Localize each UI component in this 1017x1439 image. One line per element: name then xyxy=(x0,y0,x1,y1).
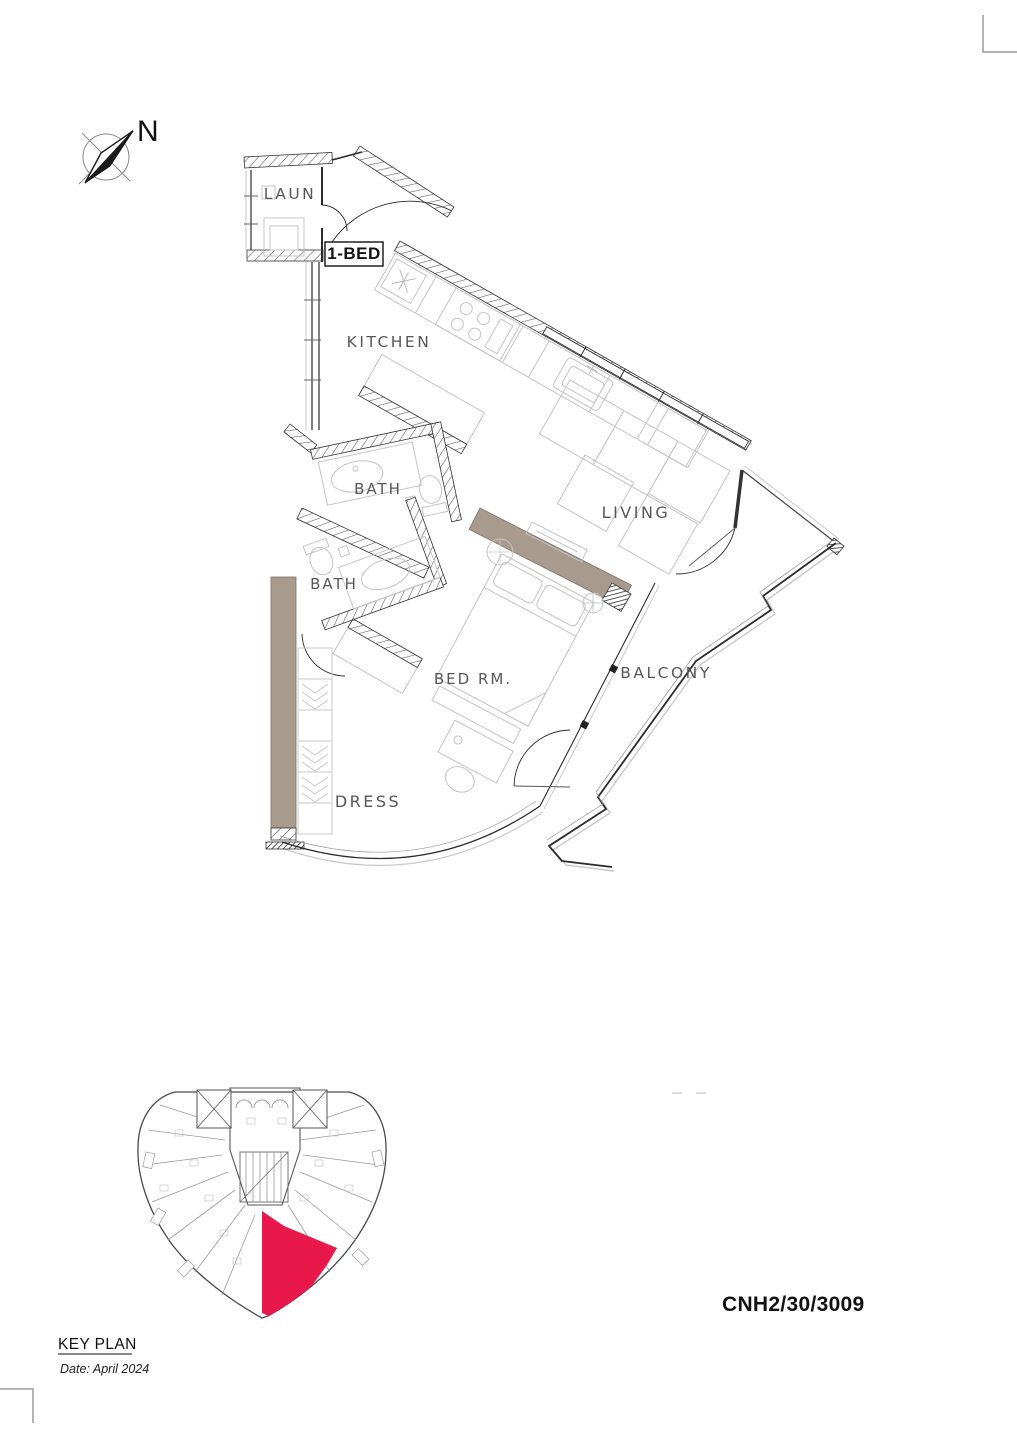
room-label-living: LIVING xyxy=(602,503,671,522)
desk xyxy=(438,720,513,783)
unit-type-tag: 1-BED xyxy=(325,242,383,266)
desk-chair xyxy=(441,762,479,797)
washer-drum xyxy=(270,226,298,250)
room-label-kitchen: KITCHEN xyxy=(347,333,432,351)
living-window-wall xyxy=(543,327,749,449)
dress-wardrobe xyxy=(298,648,332,834)
balcony: BALCONY xyxy=(514,541,836,867)
room-label-bedroom: BED RM. xyxy=(434,670,512,688)
kitchen-strip xyxy=(373,241,751,488)
pillow xyxy=(492,561,544,605)
bedroom-balcony-door-arc xyxy=(514,730,570,786)
bedroom: BED RM. xyxy=(426,554,594,806)
sofa-seat xyxy=(593,411,678,496)
fan-icon xyxy=(391,268,417,294)
crop-mark-bottom-left xyxy=(0,1389,33,1423)
bedroom-glass-wall xyxy=(540,583,655,806)
toilet xyxy=(417,473,444,505)
mullion xyxy=(580,720,589,729)
unit-code: CNH2/30/3009 xyxy=(722,1293,865,1316)
date-label: Date: April 2024 xyxy=(60,1362,149,1376)
north-label: N xyxy=(137,115,159,148)
bath-lower-door-arc xyxy=(302,634,345,676)
faint-mark xyxy=(672,1092,682,1094)
unit-type-label: 1-BED xyxy=(327,244,381,263)
bedroom-dresser xyxy=(333,619,422,694)
unit-plan: LAUN xyxy=(244,146,844,871)
curved-glass-wall xyxy=(280,801,540,859)
north-arrow: N xyxy=(79,115,159,184)
key-plan-title: KEY PLAN xyxy=(58,1336,137,1353)
bed-bench xyxy=(432,686,521,743)
shadow-balcony-edge xyxy=(553,547,840,871)
room-label-laundry: LAUN xyxy=(264,185,317,203)
mullion xyxy=(609,664,618,673)
entry xyxy=(332,146,454,242)
floorplan-sheet: N LAUN xyxy=(0,0,1017,1439)
corridor-wall xyxy=(284,262,321,453)
room-label-bath-upper: BATH xyxy=(354,480,402,498)
living-balcony-corner xyxy=(676,466,844,574)
stove xyxy=(435,288,520,361)
room-label-balcony: BALCONY xyxy=(620,664,711,682)
dress-wall-cap xyxy=(271,828,296,840)
sheet-graphics: N LAUN xyxy=(0,0,1017,1439)
room-label-dress: DRESS xyxy=(335,792,401,811)
bath-divider-wall xyxy=(297,508,429,578)
crop-mark-top-right xyxy=(983,15,1017,52)
sofa-seat xyxy=(539,380,624,465)
faint-mark xyxy=(696,1092,706,1094)
room-label-bath-lower: BATH xyxy=(310,575,358,593)
laundry-door-arc xyxy=(322,205,347,231)
dress-wall xyxy=(271,577,296,835)
pillow xyxy=(535,584,587,628)
key-plan xyxy=(138,1088,386,1318)
